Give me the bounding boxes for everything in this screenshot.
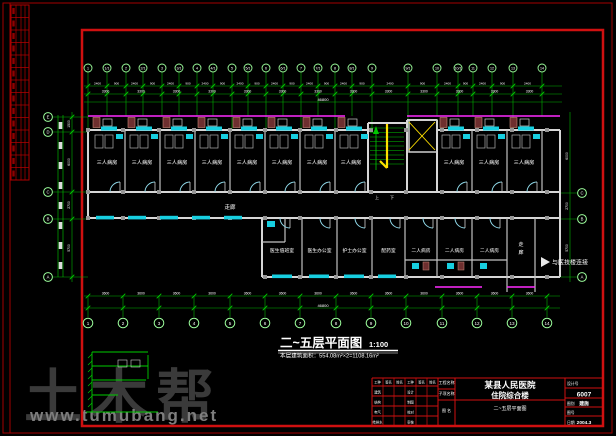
door-arc — [457, 182, 467, 192]
door-arc — [320, 218, 330, 228]
sink — [221, 134, 228, 139]
sink — [463, 134, 470, 139]
column — [369, 190, 373, 194]
axis-bubble-label: C — [46, 190, 49, 195]
dim-text: 2400 — [306, 82, 313, 86]
tb-table-header: 签名 — [385, 380, 392, 385]
bed — [130, 135, 138, 148]
column — [440, 216, 444, 220]
gallery-tick — [59, 262, 63, 269]
tb-table-cell: 结构 — [374, 400, 381, 405]
column — [86, 216, 90, 220]
fixtures — [93, 118, 550, 279]
sketch-hatch — [88, 361, 92, 365]
axis-bubble-label: 7/1 — [316, 67, 321, 71]
axis-bubble-label: D — [46, 130, 49, 135]
balcony-door — [268, 118, 275, 128]
dim-text: 2700 — [565, 202, 569, 210]
column — [404, 216, 408, 220]
room-label: 医生办公室 — [308, 247, 332, 254]
column — [404, 190, 408, 194]
dim-text: 3300 — [385, 90, 393, 94]
balcony-window — [520, 119, 529, 126]
room-label: 三人病房 — [202, 158, 223, 166]
balcony-window — [138, 119, 147, 126]
column — [298, 216, 302, 220]
tb-right-label: 设计号 — [567, 381, 579, 386]
bed — [165, 135, 173, 148]
bed — [512, 135, 520, 148]
axis-bubble-label: 4 — [193, 321, 196, 326]
dim-text: 3300 — [137, 90, 145, 94]
tb-label-subproject: 子项名称 — [439, 390, 455, 396]
balcony-window — [173, 119, 182, 126]
bed — [140, 135, 148, 148]
bed — [442, 135, 450, 148]
balcony-door — [440, 118, 447, 128]
dim-text: 3600 — [526, 292, 534, 296]
axis-bubble-label: 11 — [471, 67, 475, 71]
binding-text-mark — [12, 121, 14, 127]
bed — [210, 135, 218, 148]
tb-table-cell: 审核 — [407, 420, 414, 425]
sketch-hatch — [88, 368, 92, 372]
dim-text: 2400 — [524, 82, 531, 86]
axis-bubble-label: 9 — [371, 67, 373, 71]
axis-grid: 11/122/133/144/155/166/177/188/199/11010… — [44, 64, 587, 328]
balcony-door — [198, 118, 205, 128]
balcony-window — [450, 119, 459, 126]
column — [121, 216, 125, 220]
dim-text: 2400 — [131, 82, 138, 86]
sink — [256, 134, 263, 139]
binding-strip-table — [11, 5, 29, 180]
window — [518, 127, 534, 131]
dim-text: 900 — [289, 82, 294, 86]
binding-text-mark — [12, 8, 14, 14]
axis-bubble-label: 13 — [509, 321, 515, 326]
balcony-door — [128, 118, 135, 128]
dim-text: 900 — [324, 82, 329, 86]
room-label: 三人病房 — [444, 158, 465, 166]
binding-text-mark — [12, 146, 14, 152]
room-label: 三人病房 — [97, 158, 118, 166]
gallery-tick — [59, 202, 63, 209]
room-label: 三人病房 — [341, 158, 362, 166]
door-arc — [320, 182, 330, 192]
tb-right-label: 图别 — [567, 401, 575, 406]
column — [545, 275, 549, 279]
window — [276, 127, 292, 131]
column — [369, 128, 373, 132]
dim-text: 3300 — [208, 90, 216, 94]
sink — [116, 134, 123, 139]
dim-text: 3600 — [350, 292, 358, 296]
dim-text: 3300 — [491, 90, 499, 94]
axis-bubble-label: 6 — [265, 67, 267, 71]
door-arc — [215, 182, 225, 192]
window — [241, 127, 257, 131]
window — [101, 127, 117, 131]
tb-project-name-2: 住院综合楼 — [491, 390, 529, 400]
tb-table-header: 姓名 — [429, 380, 436, 385]
bed — [200, 135, 208, 148]
gallery-tick — [59, 222, 63, 229]
column — [510, 190, 514, 194]
cad-sheet: 土木帮 www.tumubang.net 11/122/133/144/155/… — [0, 0, 616, 436]
column — [298, 275, 302, 279]
door-arc — [110, 182, 120, 192]
bed — [305, 135, 313, 148]
dim-text: 900 — [463, 82, 468, 86]
door-arc — [250, 182, 260, 192]
axis-bubble-label: E — [47, 115, 50, 120]
dim-text: 2400 — [94, 82, 101, 86]
window — [136, 127, 152, 131]
column — [545, 190, 549, 194]
axis-bubble-label: 11 — [440, 321, 445, 326]
axis-bubble-label: B — [581, 217, 584, 222]
area-note: 本层建筑面积：554.08m²×2=1108.16m² — [280, 352, 379, 360]
dim-text: 6000 — [67, 158, 71, 166]
dim-text: 1500 — [67, 120, 71, 128]
tb-table-cell: 电气 — [374, 410, 381, 415]
sketch-hatch — [88, 396, 92, 400]
bed — [315, 135, 323, 148]
column — [545, 128, 549, 132]
corridor-label-v: 走 — [518, 242, 523, 248]
column — [510, 216, 514, 220]
axis-bubble-label: 3/1 — [177, 67, 182, 71]
axis-bubble-label: 8/1 — [350, 67, 355, 71]
south-window — [309, 275, 329, 279]
balcony-window — [208, 119, 217, 126]
dim-text: 3600 — [314, 292, 322, 296]
sink — [151, 134, 158, 139]
corridor-label-v: 廊 — [518, 249, 523, 256]
tb-right-label: 图号 — [567, 410, 575, 415]
axis-bubble-label: 9/1 — [406, 67, 411, 71]
axis-bubble-label: 6/1 — [281, 67, 286, 71]
balcony-door — [338, 118, 345, 128]
column — [510, 275, 514, 279]
balcony-window — [103, 119, 112, 126]
dim-text: 3300 — [102, 90, 110, 94]
dim-text: 5700 — [67, 244, 71, 252]
binding-text-mark — [12, 33, 14, 39]
column — [228, 190, 232, 194]
gallery-tick — [59, 162, 63, 169]
tb-table-cell: 校对 — [407, 410, 414, 415]
toilet-door — [458, 262, 464, 270]
door-arc — [145, 182, 155, 192]
sink — [326, 134, 333, 139]
axis-bubble-label: 12 — [490, 67, 494, 71]
dim-text: 3600 — [491, 292, 499, 296]
bed — [280, 135, 288, 148]
bed — [245, 135, 253, 148]
corridor-window — [192, 216, 210, 220]
tb-table-cell: 建筑 — [374, 390, 381, 395]
tb-table-header: 姓名 — [396, 380, 403, 385]
dim-text: 3300 — [244, 90, 252, 94]
window — [206, 127, 222, 131]
room-label: 二人病房 — [445, 247, 464, 254]
binding-text-mark — [12, 46, 14, 52]
corridor-window — [160, 216, 178, 220]
door-arc — [423, 218, 433, 228]
toilet-fixture — [447, 263, 454, 269]
room-label: 护士办公室 — [343, 247, 367, 254]
axis-bubble-label: 1 — [87, 67, 89, 71]
column — [298, 128, 302, 132]
dim-text: 2700 — [67, 201, 71, 209]
door-arc — [390, 218, 400, 228]
toilet-fixture — [412, 263, 419, 269]
bed — [477, 135, 485, 148]
dim-text: 3300 — [350, 90, 358, 94]
axis-bubble-label: A — [47, 275, 50, 280]
bed — [235, 135, 243, 148]
axis-bubble-label: A — [581, 275, 584, 280]
axis-bubble-label: 1/1 — [105, 67, 110, 71]
dim-text: 2400 — [237, 82, 244, 86]
sketch-hatch — [88, 389, 92, 393]
axis-bubble-label: 6 — [264, 321, 267, 326]
window — [448, 127, 464, 131]
dim-text: 2400 — [167, 82, 174, 86]
column — [475, 216, 479, 220]
column — [298, 190, 302, 194]
room-label: 三人病房 — [272, 158, 293, 166]
dim-text: 3300 — [420, 90, 428, 94]
window — [311, 127, 327, 131]
column — [86, 190, 90, 194]
corridor-window — [96, 216, 114, 220]
tb-project-name-1: 某县人民医院 — [484, 380, 536, 390]
room-label: 三人病房 — [479, 158, 500, 166]
corridor-label: 走廊 — [224, 203, 236, 211]
dim-text: 2400 — [271, 82, 278, 86]
sketch-hatch — [88, 375, 92, 379]
door-arc — [180, 182, 190, 192]
toilet-fixture — [267, 221, 275, 227]
dim-text: 3600 — [102, 292, 110, 296]
column — [334, 275, 338, 279]
dim-text: 3300 — [456, 90, 464, 94]
gallery-tick — [59, 242, 63, 249]
dim-text: 3300 — [279, 90, 287, 94]
tb-table-header: 工种 — [407, 380, 414, 385]
axis-bubble-label: 9 — [370, 321, 373, 326]
connect-arrow — [541, 257, 550, 267]
bed — [452, 135, 460, 148]
corridor-window — [128, 216, 146, 220]
stair-arrow-head — [373, 126, 379, 134]
dim-text: 2400 — [479, 82, 486, 86]
room-label: 三人病房 — [307, 158, 328, 166]
axis-bubble-label: 5 — [231, 67, 233, 71]
tb-right-value: 建施 — [578, 400, 589, 407]
column — [334, 128, 338, 132]
axis-bubble-label: 10 — [435, 67, 439, 71]
binding-text-mark — [12, 21, 14, 27]
axis-bubble-label: 2 — [125, 67, 127, 71]
column — [86, 128, 90, 132]
sink — [186, 134, 193, 139]
sketch-hatch — [88, 403, 92, 407]
drawing-title: 二~五层平面图 — [280, 336, 362, 350]
dim-text: 3600 — [420, 292, 428, 296]
sink — [361, 134, 368, 139]
door-arc — [527, 182, 537, 192]
axis-bubble-label: C — [580, 191, 583, 196]
room-label: 三人病房 — [132, 158, 153, 166]
balcony-door — [163, 118, 170, 128]
sketch-hatch — [88, 354, 92, 358]
dim-text: 3600 — [279, 292, 287, 296]
dim-text: 900 — [220, 82, 225, 86]
column — [404, 128, 408, 132]
dim-text: 2400 — [340, 82, 347, 86]
dim-text: 6000 — [565, 152, 569, 160]
dim-total: 46800 — [317, 303, 329, 308]
axis-bubble-label: 14 — [540, 67, 544, 71]
column — [440, 128, 444, 132]
gallery-tick — [59, 142, 63, 149]
window — [483, 127, 499, 131]
door-arc — [285, 182, 295, 192]
axis-bubble-label: 7 — [299, 321, 302, 326]
bed — [95, 135, 103, 148]
balcony-window — [243, 119, 252, 126]
column — [475, 128, 479, 132]
tb-table-header: 工种 — [374, 380, 381, 385]
drawing-scale: 1:100 — [369, 340, 388, 349]
column — [263, 275, 267, 279]
window — [171, 127, 187, 131]
balcony-door — [233, 118, 240, 128]
sink — [291, 134, 298, 139]
stair-down-label: 下 — [390, 195, 394, 200]
axis-bubble-label: 1 — [87, 321, 90, 326]
balcony-window — [313, 119, 322, 126]
bed — [340, 135, 348, 148]
door-arc — [355, 218, 365, 228]
binding-text-mark — [12, 83, 14, 89]
dim-text: 3600 — [208, 292, 216, 296]
axis-bubble-label: 13 — [511, 67, 515, 71]
tb-label-drawing: 图 名 — [442, 407, 451, 413]
axis-bubble-label: 8 — [335, 321, 338, 326]
gallery-tick — [59, 122, 63, 129]
balcony-window — [485, 119, 494, 126]
room-label: 配药室 — [381, 247, 396, 254]
gallery-tick — [59, 182, 63, 189]
dim-text: 3300 — [526, 90, 534, 94]
column — [157, 128, 161, 132]
door-arc — [490, 218, 500, 228]
column — [157, 190, 161, 194]
sketch-hatch — [88, 382, 92, 386]
balcony-window — [278, 119, 287, 126]
toilet-fixture — [480, 263, 487, 269]
axis-bubble-label: 14 — [544, 321, 550, 326]
room-label: 二人病房 — [411, 247, 430, 254]
bed — [270, 135, 278, 148]
door-arc — [492, 182, 502, 192]
toilet-door — [423, 262, 429, 270]
room-label: 三人病房 — [167, 158, 188, 166]
column — [369, 216, 373, 220]
dim-text: 900 — [254, 82, 259, 86]
floor-plan-svg: 11/122/133/144/155/166/177/188/199/11010… — [0, 0, 616, 436]
tb-table-header: 签名 — [418, 380, 425, 385]
column — [121, 128, 125, 132]
room-label: 三人病房 — [237, 158, 258, 166]
balcony-door — [93, 118, 100, 128]
balcony-door — [303, 118, 310, 128]
bed — [487, 135, 495, 148]
binding-text-mark — [12, 108, 14, 114]
south-window — [272, 275, 292, 279]
binding-text-mark — [12, 171, 14, 177]
door-arc — [455, 218, 465, 228]
sink — [533, 134, 540, 139]
binding-text-mark — [12, 158, 14, 164]
tb-table-cell: 制图 — [407, 400, 414, 405]
south-window — [344, 275, 364, 279]
column — [510, 128, 514, 132]
bed — [175, 135, 183, 148]
column — [475, 275, 479, 279]
column — [404, 275, 408, 279]
binding-text-mark — [12, 133, 14, 139]
binding-text-mark — [12, 71, 14, 77]
axis-bubble-label: 5/1 — [246, 67, 251, 71]
window — [346, 127, 362, 131]
balcony-door — [475, 118, 482, 128]
room-label: 三人病房 — [514, 158, 535, 166]
sink — [498, 134, 505, 139]
axis-bubble-label: 5 — [229, 321, 232, 326]
door-arc — [355, 182, 365, 192]
dim-text: 900 — [114, 82, 119, 86]
tb-table-cell: 设计 — [407, 390, 414, 395]
room-label: 二人病房 — [480, 247, 499, 254]
dim-text: 900 — [150, 82, 155, 86]
axis-bubble-label: 2 — [122, 321, 125, 326]
binding-text-mark — [12, 96, 14, 102]
room-labels: 三人病房三人病房三人病房三人病房三人病房三人病房三人病房三人病房三人病房三人病房… — [97, 158, 588, 267]
axis-bubble-label: B — [47, 217, 50, 222]
column — [121, 190, 125, 194]
dim-text: 3600 — [137, 292, 145, 296]
dim-text: 3300 — [173, 90, 181, 94]
dim-text: 3600 — [244, 292, 252, 296]
tb-drawing-name: 二~五层平面图 — [494, 406, 527, 412]
tb-right-label: 日期 — [567, 420, 575, 425]
dim-text: 3300 — [314, 90, 322, 94]
dim-text: 3600 — [385, 292, 393, 296]
column — [263, 216, 267, 220]
dim-text: 900 — [420, 82, 425, 86]
axis-bubble-label: 2/1 — [141, 67, 146, 71]
column — [263, 128, 267, 132]
balcony-door — [510, 118, 517, 128]
column — [440, 190, 444, 194]
south-window — [378, 275, 396, 279]
